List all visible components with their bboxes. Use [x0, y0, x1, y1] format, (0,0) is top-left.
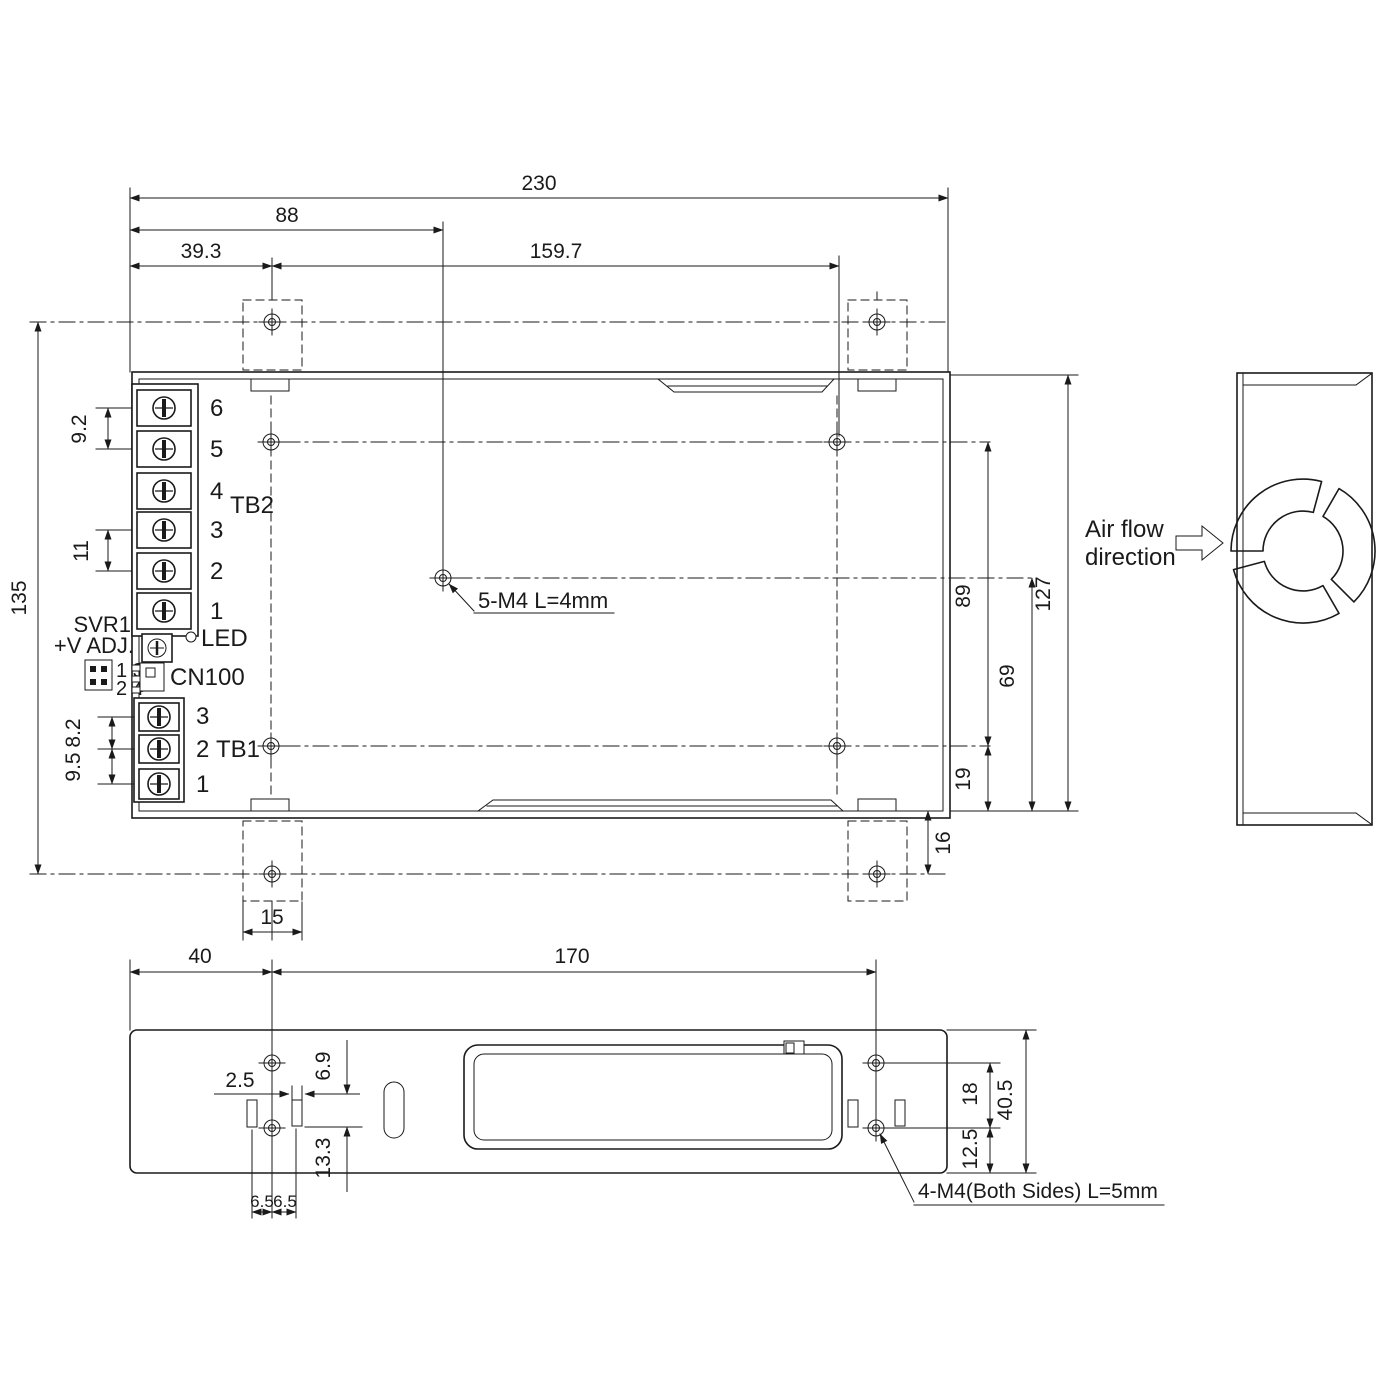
tb2-terminal-number: 2 [210, 558, 223, 585]
fan-cutout [1231, 479, 1375, 623]
dim-slot-bottom-y: 13.3 [312, 1138, 335, 1179]
dim-center-hole-y: 69 [996, 664, 1019, 687]
cn100-label: CN100 [170, 664, 245, 691]
fan-end-view: Air flow direction [1085, 373, 1375, 825]
fan-blade-opening [1323, 489, 1375, 602]
cn100-connector [132, 663, 164, 693]
terminal-screw [153, 519, 175, 541]
terminal-block-tb2 [132, 384, 198, 636]
bottom-edge-recess [478, 800, 843, 811]
mechanical-drawing-canvas: 6 5 4 3 2 1 TB2 LED SVR1 +V ADJ. 1 3 2 4 [0, 0, 1400, 1400]
tb2-terminal-number: 6 [210, 395, 223, 422]
dim-hole-span-x: 159.7 [530, 240, 583, 263]
dim-slot-left-x: 6.5 [250, 1192, 274, 1211]
pin-connector [85, 660, 112, 690]
dim-overall-width: 230 [521, 172, 556, 195]
bracket-foot [858, 799, 896, 811]
tb2-terminal-number: 4 [210, 478, 223, 505]
label-recess-cutout [464, 1041, 842, 1149]
dim-tb2-pitch-b: 11 [70, 540, 93, 562]
terminal-block-tb1 [134, 698, 184, 802]
tb2-terminal-number: 5 [210, 436, 223, 463]
tb2-label: TB2 [230, 492, 274, 519]
dim-center-hole-x: 88 [275, 204, 298, 227]
dim-overall-height: 135 [8, 580, 31, 615]
dim-left-hole-x: 39.3 [181, 240, 222, 263]
dim-slot-right-x: 6.5 [273, 1192, 297, 1211]
fan-blade-opening [1231, 479, 1322, 551]
airflow-label-line1: Air flow [1085, 516, 1164, 543]
dim-hole-span-y: 18 [959, 1082, 982, 1105]
bracket-foot [858, 379, 896, 391]
svr1-potentiometer [142, 634, 172, 662]
airflow-label-line2: direction [1085, 544, 1176, 571]
dim-body-height: 40.5 [994, 1080, 1017, 1121]
center-hole-callout: 5-M4 L=4mm [478, 588, 608, 613]
tb1-label: TB1 [216, 736, 260, 763]
vent-slot [292, 1100, 302, 1126]
side-panel-view: 40 170 2.5 6.9 13.3 6.5 6.5 18 12.5 40.5… [130, 945, 1164, 1218]
dim-tb1-pitch-b: 9.5 [62, 752, 85, 781]
tb2-terminal-number: 3 [210, 517, 223, 544]
tb1-terminal-number: 1 [196, 771, 209, 798]
top-edge-recess [658, 379, 834, 392]
side-hole-callout: 4-M4(Both Sides) L=5mm [918, 1180, 1158, 1203]
terminal-screw [153, 438, 175, 460]
vent-slot [895, 1100, 905, 1126]
led-indicator [186, 632, 196, 642]
fan-blade-opening [1234, 561, 1340, 623]
dim-slot-width: 2.5 [225, 1069, 254, 1092]
airflow-arrow-icon [1176, 526, 1223, 560]
extension-lines [96, 188, 1078, 940]
dim-bottom-hole-y: 12.5 [959, 1129, 982, 1170]
terminal-screw [148, 773, 170, 795]
dim-tab-width: 15 [260, 906, 283, 929]
terminal-screw [148, 706, 170, 728]
bracket-foot [251, 379, 289, 391]
terminal-screw [153, 480, 175, 502]
dim-tb2-pitch-a: 9.2 [68, 414, 91, 443]
dim-tb1-pitch-a: 8.2 [62, 718, 85, 747]
dim-body-height: 127 [1032, 576, 1055, 611]
dim-slot-top-y: 6.9 [312, 1051, 335, 1080]
dim-hole-span-x: 170 [554, 945, 589, 968]
bracket-foot [251, 799, 289, 811]
dim-tab-hole-offset: 16 [932, 831, 955, 854]
led-label: LED [201, 625, 248, 652]
dim-bottom-hole-y: 19 [952, 767, 975, 790]
terminal-screw [153, 600, 175, 622]
dim-hole-span-y: 89 [952, 584, 975, 607]
drawing-svg: 6 5 4 3 2 1 TB2 LED SVR1 +V ADJ. 1 3 2 4 [0, 0, 1400, 1400]
tb2-terminal-number: 1 [210, 598, 223, 625]
v-adj-label: +V ADJ. [54, 633, 134, 658]
tb1-terminal-number: 3 [196, 703, 209, 730]
terminal-screw [153, 560, 175, 582]
tb1-terminal-number: 2 [196, 736, 209, 763]
dim-left-hole-x: 40 [188, 945, 211, 968]
oval-slot [384, 1082, 404, 1138]
vent-slot [848, 1100, 858, 1127]
terminal-screw [148, 738, 170, 760]
terminal-screw [153, 397, 175, 419]
top-view: 6 5 4 3 2 1 TB2 LED SVR1 +V ADJ. 1 3 2 4 [8, 172, 1078, 940]
vent-slot [247, 1100, 257, 1127]
